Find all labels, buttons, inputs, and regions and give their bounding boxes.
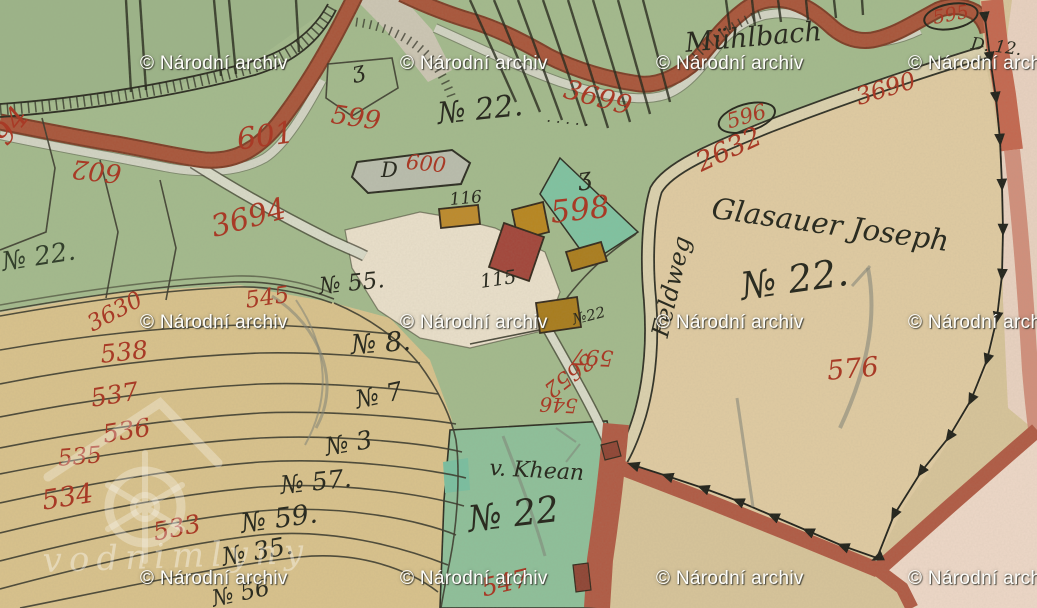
archive-copyright-watermark: © Národní archiv bbox=[140, 53, 288, 75]
archive-copyright-watermark: © Národní archiv bbox=[400, 312, 548, 334]
archive-copyright-watermark: © Národní archiv bbox=[400, 568, 548, 590]
cadastral-map-scan: vodnimlyny 94601602599600369436993690595… bbox=[0, 0, 1037, 608]
archive-copyright-watermark: © Národní archiv bbox=[140, 312, 288, 334]
archive-copyright-watermark: © Národní archiv bbox=[656, 568, 804, 590]
archive-copyright-watermark: © Národní archiv bbox=[140, 568, 288, 590]
archive-copyright-watermark: © Národní archiv bbox=[656, 312, 804, 334]
archive-copyright-watermark: © Národní archiv bbox=[908, 53, 1037, 75]
archive-copyright-watermark: © Národní archiv bbox=[656, 53, 804, 75]
archive-copyright-watermark: © Národní archiv bbox=[400, 53, 548, 75]
archive-copyright-watermark: © Národní archiv bbox=[908, 568, 1037, 590]
mill-roof bbox=[48, 403, 218, 477]
archive-copyright-watermark: © Národní archiv bbox=[908, 312, 1037, 334]
